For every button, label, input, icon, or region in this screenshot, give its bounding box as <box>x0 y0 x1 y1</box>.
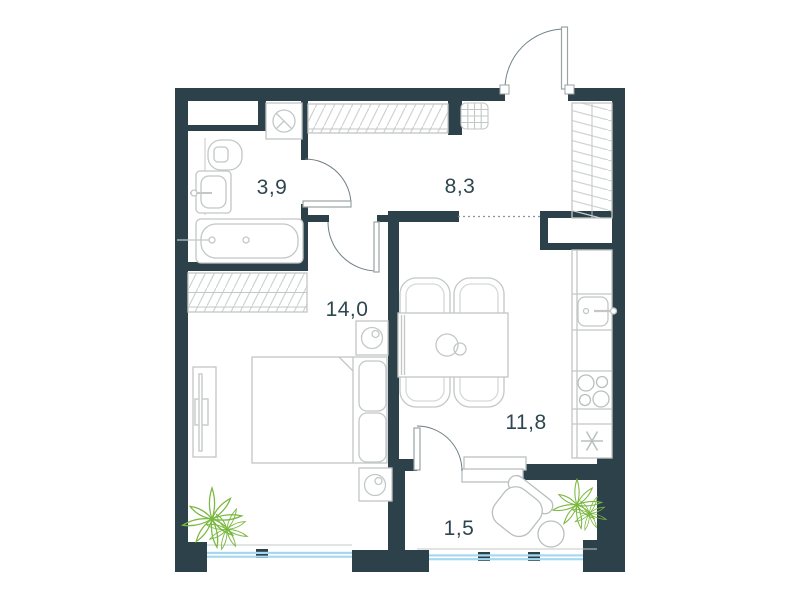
wall-exterior-right <box>612 88 625 470</box>
nightstand-bottom-icon <box>359 468 392 501</box>
wall-exterior-left <box>175 88 188 565</box>
room-label-kitchen-living: 11,8 <box>505 411 546 435</box>
room-label-bathroom: 3,9 <box>257 176 288 200</box>
wardrobe-top-icon <box>308 104 448 133</box>
tv-stand-icon <box>193 367 216 457</box>
sink-icon <box>190 171 231 213</box>
balcony-door <box>414 426 462 471</box>
side-table-icon <box>538 521 564 547</box>
bathtub-icon <box>177 219 303 263</box>
bedroom-window-glass-inner <box>207 556 352 558</box>
shoe-cabinet-icon <box>461 103 488 129</box>
bedroom-door <box>328 222 379 272</box>
wardrobe-bedroom-icon <box>188 273 307 312</box>
floor-plan-drawing <box>0 0 800 600</box>
wall-bottom-left-corner <box>175 542 207 572</box>
room-label-balcony: 1,5 <box>444 517 475 541</box>
wall-bathroom-niche-right <box>258 101 266 125</box>
wall-bottom-center-block <box>352 550 429 572</box>
bedroom-window-glass-outer <box>207 552 352 554</box>
room-label-bedroom: 14,0 <box>326 298 369 322</box>
balcony-window-glass-outer <box>429 554 583 556</box>
toilet-icon <box>208 140 242 170</box>
wall-exterior-top-left-of-entrance <box>175 88 505 101</box>
washing-machine-icon <box>266 103 302 139</box>
dining-table-icon <box>398 313 508 377</box>
wardrobe-right-icon <box>572 103 612 218</box>
wall-kitchen-balcony <box>523 464 598 480</box>
wall-stub-hallway <box>448 101 462 135</box>
shaft-niche <box>548 218 612 243</box>
nightstand-top-icon <box>356 321 388 355</box>
entrance-door <box>500 27 574 94</box>
bed-icon <box>252 357 387 463</box>
wall-bedroom-top-left-of-door <box>308 215 329 222</box>
room-label-hallway: 8,3 <box>445 175 476 199</box>
wall-balcony-right <box>597 458 625 552</box>
floor-plan: 3,9 8,3 14,0 11,8 1,5 <box>0 0 800 600</box>
wall-kitchen-top <box>390 211 459 222</box>
kitchen-counter <box>572 250 617 458</box>
balcony-window-glass-inner <box>429 558 583 560</box>
bathroom-door <box>303 159 351 207</box>
wall-bathroom-niche-bottom <box>175 125 266 131</box>
